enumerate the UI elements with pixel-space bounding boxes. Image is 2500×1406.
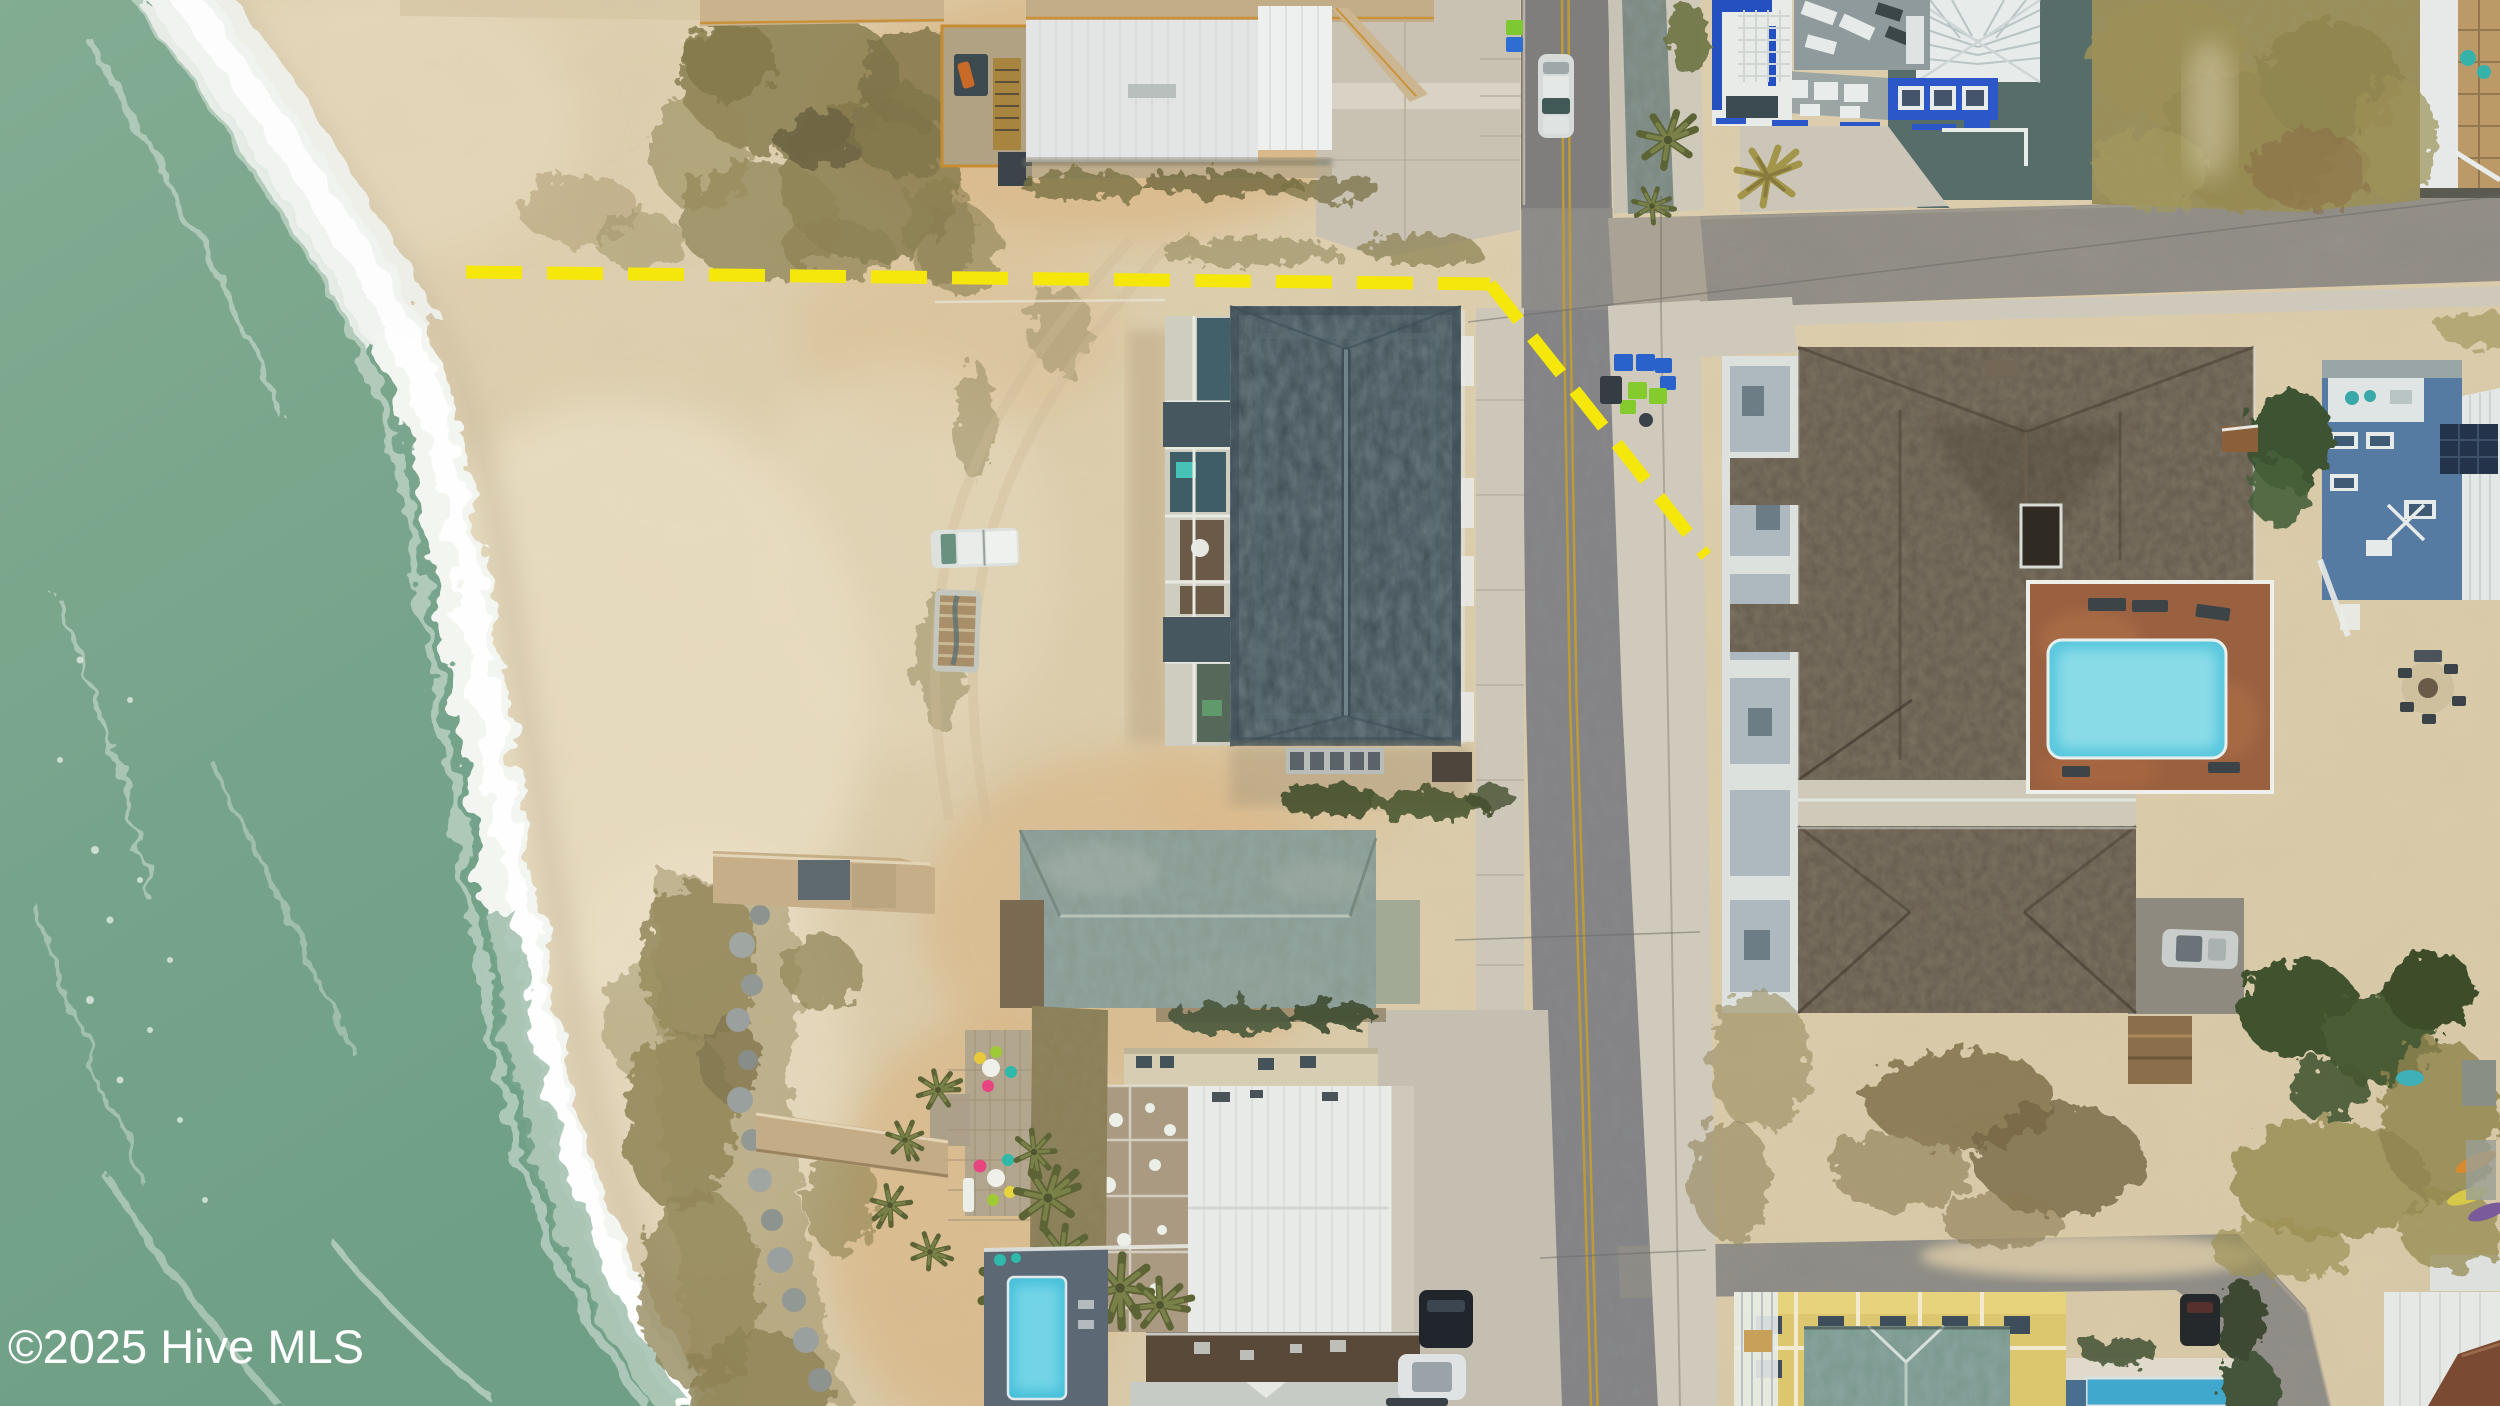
svg-text:©2025 Hive MLS: ©2025 Hive MLS [8, 1320, 364, 1373]
